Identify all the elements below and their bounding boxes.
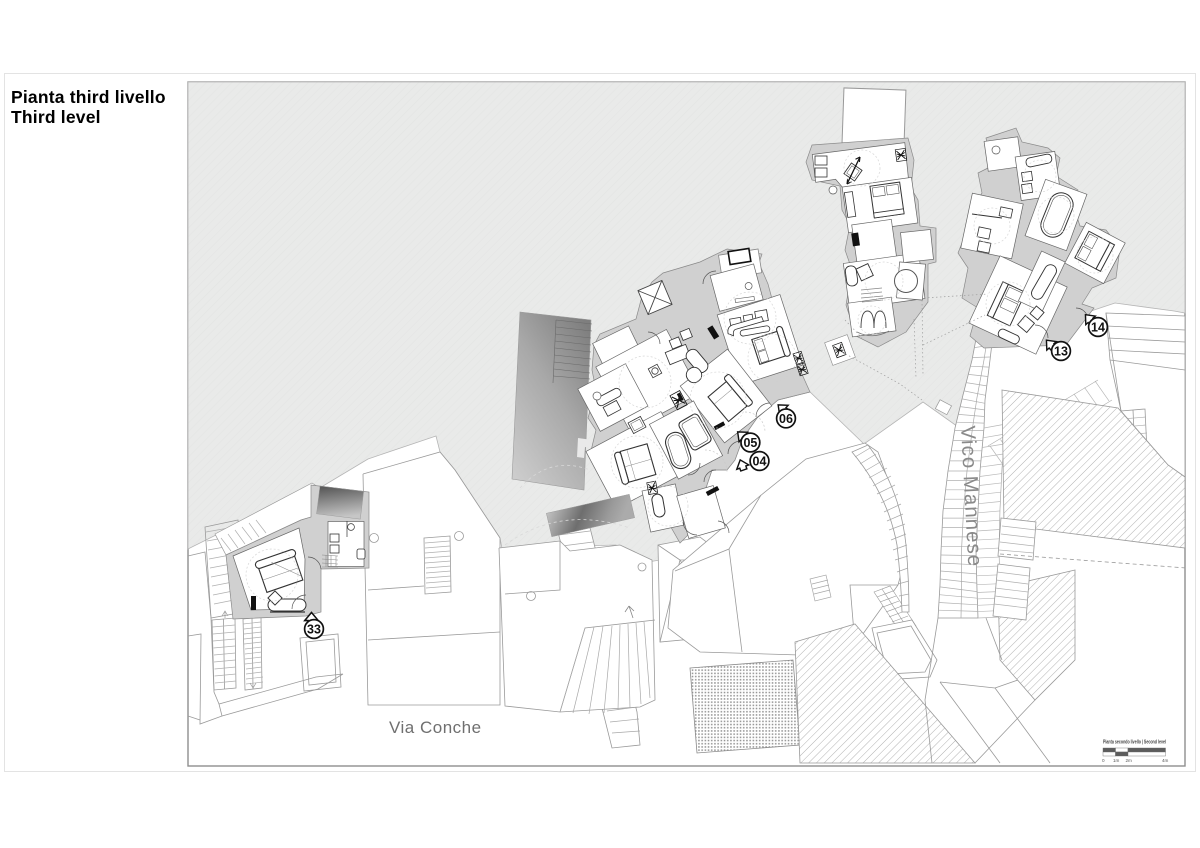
- svg-text:Via Conche: Via Conche: [389, 718, 482, 737]
- svg-text:Pianta third livello: Pianta third livello: [11, 87, 166, 107]
- svg-text:1m: 1m: [1113, 758, 1120, 763]
- svg-text:0: 0: [1102, 758, 1105, 763]
- svg-text:05: 05: [743, 436, 757, 450]
- svg-text:2m: 2m: [1126, 758, 1133, 763]
- svg-text:Pianta secondo livello | Secon: Pianta secondo livello | Second level: [1103, 740, 1166, 746]
- svg-text:14: 14: [1091, 321, 1105, 335]
- svg-text:04: 04: [753, 455, 767, 469]
- svg-text:33: 33: [307, 623, 321, 637]
- svg-text:13: 13: [1054, 345, 1068, 359]
- svg-text:06: 06: [779, 412, 793, 426]
- svg-text:Third level: Third level: [11, 107, 101, 127]
- svg-text:4m: 4m: [1162, 758, 1169, 763]
